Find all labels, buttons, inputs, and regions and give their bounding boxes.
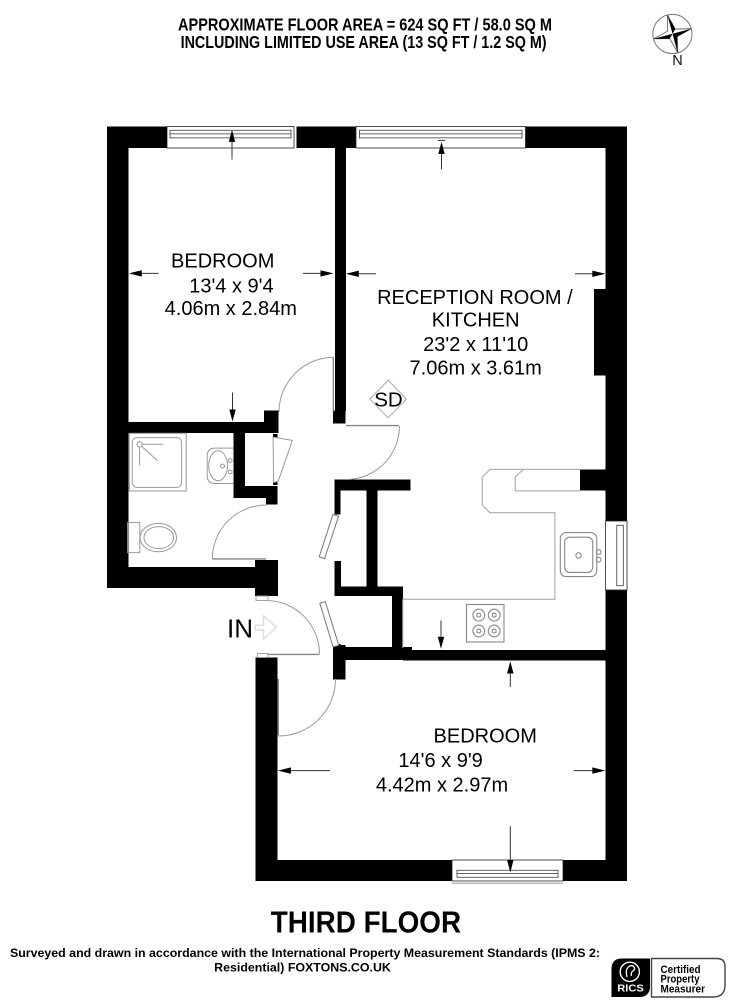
svg-text:KITCHEN: KITCHEN [432,309,520,331]
svg-text:THIRD FLOOR: THIRD FLOOR [271,905,461,940]
svg-text:RICS: RICS [617,984,644,995]
svg-text:N: N [672,53,682,69]
svg-text:4.06m x 2.84m: 4.06m x 2.84m [165,298,297,320]
svg-text:SD: SD [374,389,402,412]
svg-text:4.42m x 2.97m: 4.42m x 2.97m [376,774,508,796]
svg-text:Residential) FOXTONS.CO.UK: Residential) FOXTONS.CO.UK [214,961,391,975]
svg-text:14'6 x 9'9: 14'6 x 9'9 [398,750,482,772]
svg-text:7.06m x 3.61m: 7.06m x 3.61m [410,357,542,379]
svg-text:13'4 x 9'4: 13'4 x 9'4 [189,275,273,297]
svg-text:IN: IN [227,613,253,643]
svg-text:INCLUDING LIMITED USE AREA (13: INCLUDING LIMITED USE AREA (13 SQ FT / 1… [181,32,547,52]
svg-text:RECEPTION ROOM /: RECEPTION ROOM / [377,287,573,309]
svg-text:Measurer: Measurer [661,983,706,995]
svg-text:BEDROOM: BEDROOM [434,726,537,748]
svg-text:23'2 x 11'10: 23'2 x 11'10 [423,334,528,356]
svg-text:Surveyed and drawn in accordan: Surveyed and drawn in accordance with th… [10,946,600,960]
svg-text:BEDROOM: BEDROOM [171,251,274,273]
